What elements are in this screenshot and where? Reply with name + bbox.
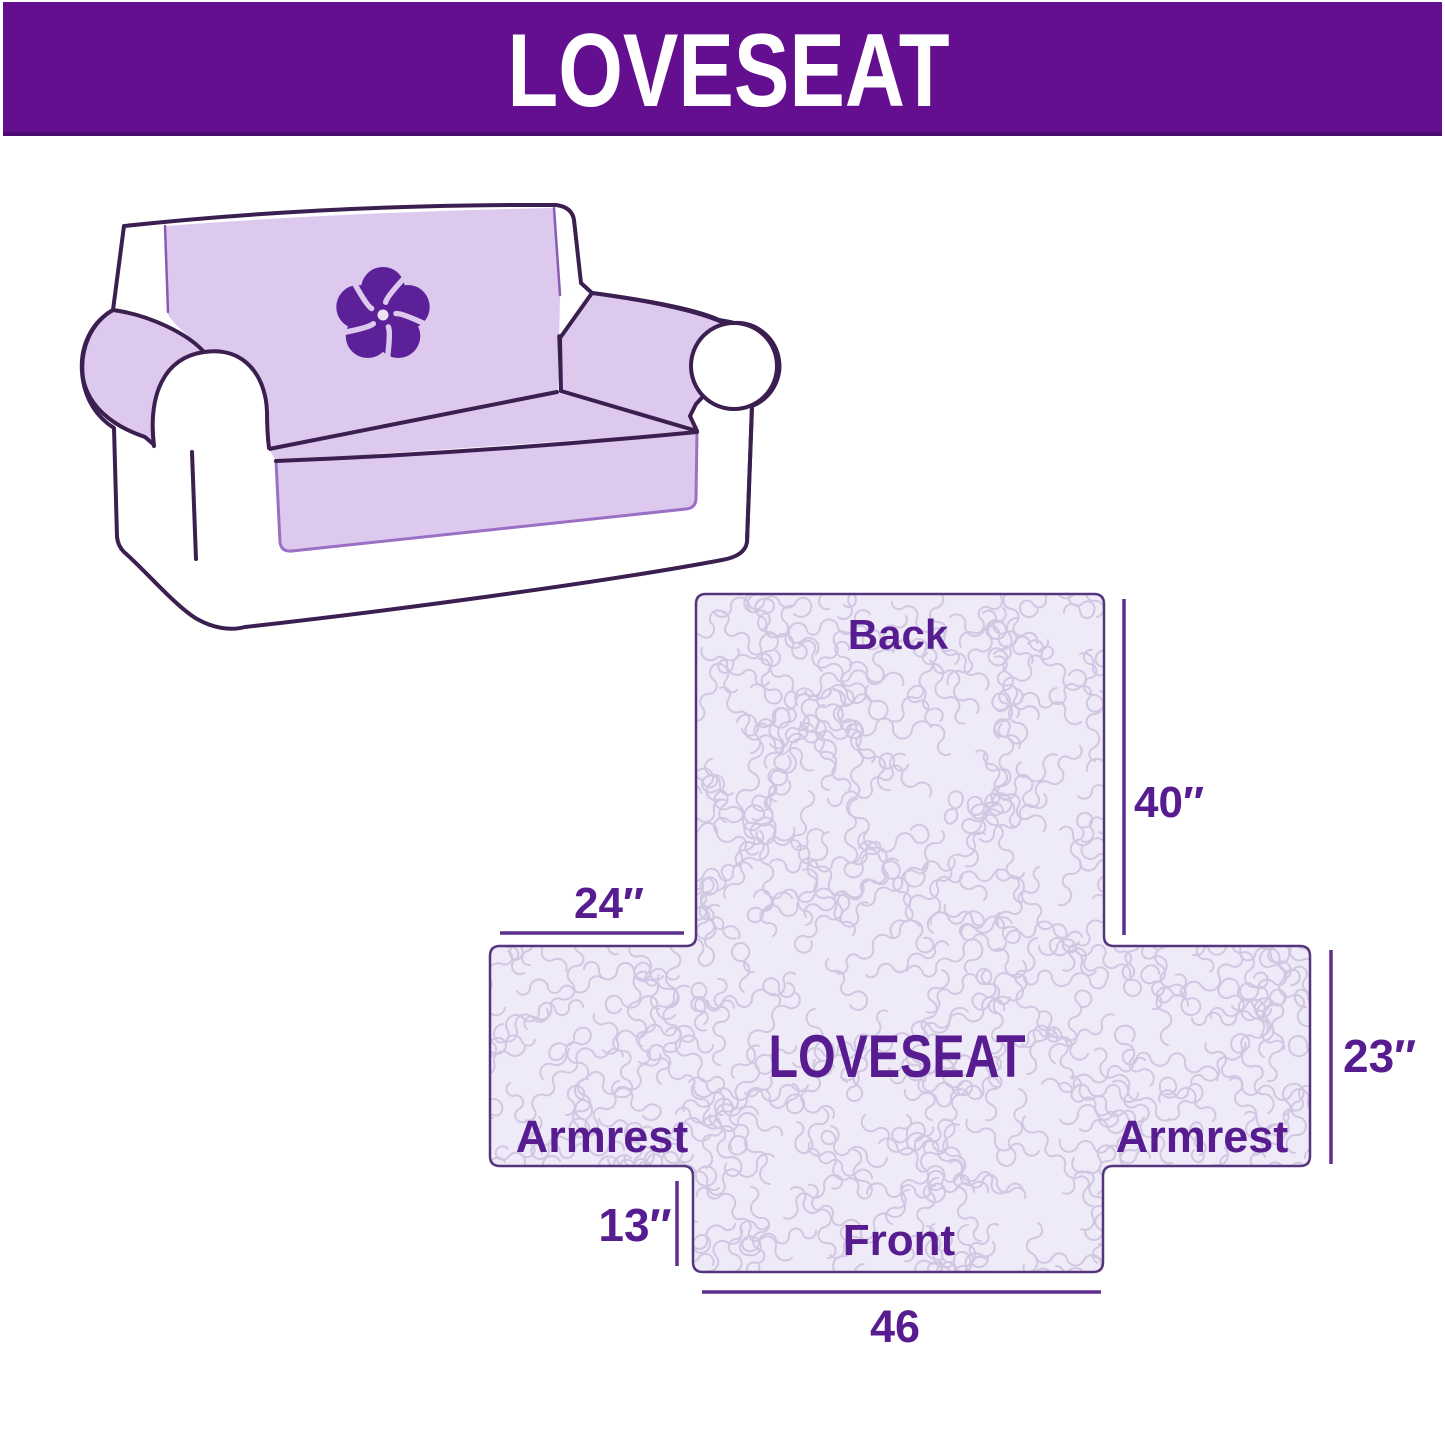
svg-text:40″: 40″ — [1134, 778, 1204, 827]
svg-text:13″: 13″ — [598, 1199, 671, 1251]
svg-text:LOVESEAT: LOVESEAT — [769, 1023, 1026, 1090]
svg-text:Armrest: Armrest — [1116, 1111, 1289, 1162]
svg-text:46: 46 — [870, 1301, 920, 1352]
svg-text:Front: Front — [843, 1216, 956, 1265]
svg-text:23″: 23″ — [1343, 1030, 1416, 1082]
svg-text:Back: Back — [848, 611, 949, 658]
svg-text:24″: 24″ — [574, 879, 644, 928]
svg-text:Armrest: Armrest — [516, 1111, 689, 1162]
